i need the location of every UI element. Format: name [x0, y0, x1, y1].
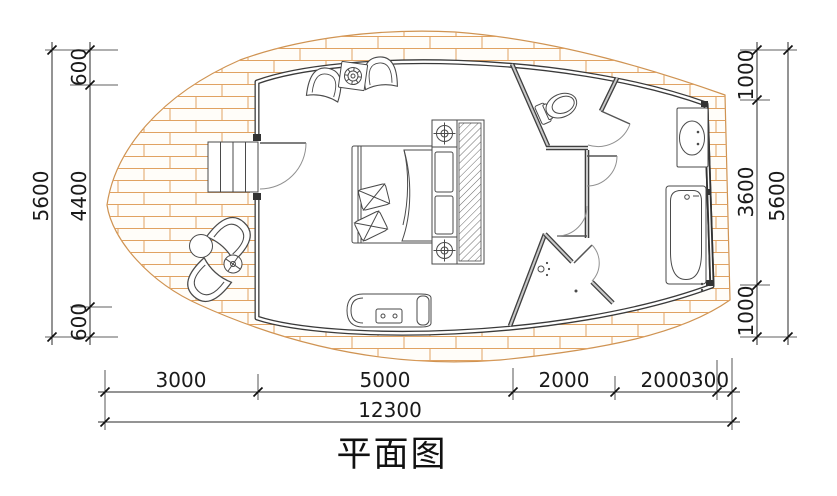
bench-icon: [347, 294, 431, 327]
dim-bottom-total: 12300: [358, 398, 422, 422]
entry-stairs-icon: [208, 142, 258, 192]
dim-right-seg-top: 1000: [734, 50, 758, 101]
drawing-title: 平面图: [336, 435, 447, 475]
dim-bottom-seg-2: 5000: [360, 368, 411, 392]
deck-round-table-icon: [190, 235, 213, 258]
dim-left-total: 5600: [29, 171, 53, 222]
door-jamb: [253, 134, 261, 141]
dim-bottom-seg-5: 300: [691, 368, 729, 392]
double-bed-icon: [352, 146, 434, 243]
wardrobe-icon: [432, 120, 484, 264]
hanging-rail-hatch: [459, 123, 481, 261]
floor-plan-page: 5600 600 4400 600 1000 3600 1000 5600 30…: [0, 0, 837, 496]
washbasin-icon: [677, 108, 708, 167]
dim-bottom-seg-1: 3000: [156, 368, 207, 392]
dim-right-seg-mid: 3600: [734, 167, 758, 218]
dim-left-seg-top: 600: [67, 48, 91, 86]
dim-left-seg-mid: 4400: [67, 171, 91, 222]
floor-plan-drawing: 5600 600 4400 600 1000 3600 1000 5600 30…: [0, 0, 837, 496]
dim-right-total: 5600: [765, 171, 789, 222]
bathtub-icon: [666, 186, 706, 291]
mullion-block: [701, 101, 708, 107]
plant-table-icon: [338, 61, 367, 90]
door-jamb: [253, 193, 261, 200]
floor-drain-icon: [575, 290, 578, 293]
left-dimensions: 5600 600 4400 600: [29, 42, 118, 345]
right-dimensions: 1000 3600 1000 5600: [734, 42, 797, 345]
dim-bottom-seg-4: 2000: [641, 368, 692, 392]
dim-bottom-seg-3: 2000: [539, 368, 590, 392]
dim-right-seg-bottom: 1000: [734, 286, 758, 337]
mullion-block: [706, 280, 713, 286]
dim-left-seg-bottom: 600: [67, 303, 91, 341]
bottom-dimensions: 3000 5000 2000 2000 300 12300: [98, 358, 740, 430]
